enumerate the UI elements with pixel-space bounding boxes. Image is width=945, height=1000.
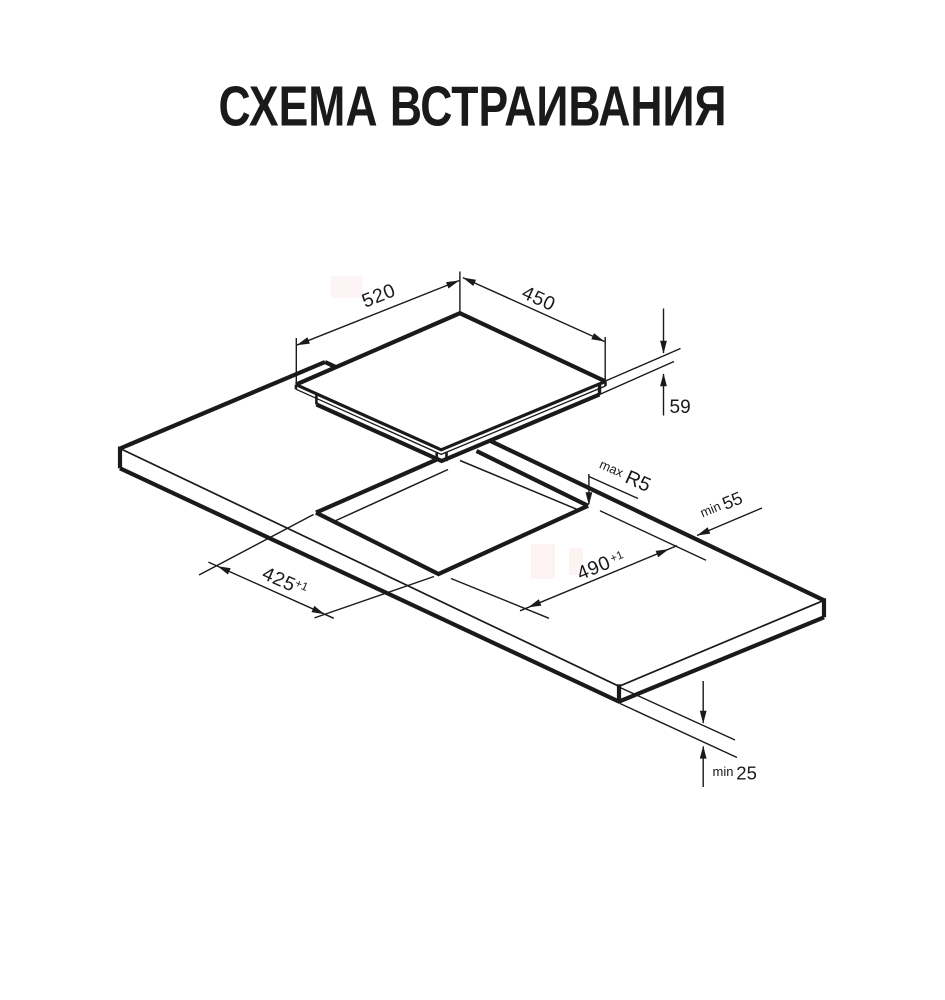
svg-text:min: min bbox=[713, 764, 734, 779]
svg-text:25: 25 bbox=[736, 763, 757, 784]
svg-text:59: 59 bbox=[670, 397, 691, 418]
svg-text:СХЕМА ВСТРАИВАНИЯ: СХЕМА ВСТРАИВАНИЯ bbox=[219, 75, 727, 139]
